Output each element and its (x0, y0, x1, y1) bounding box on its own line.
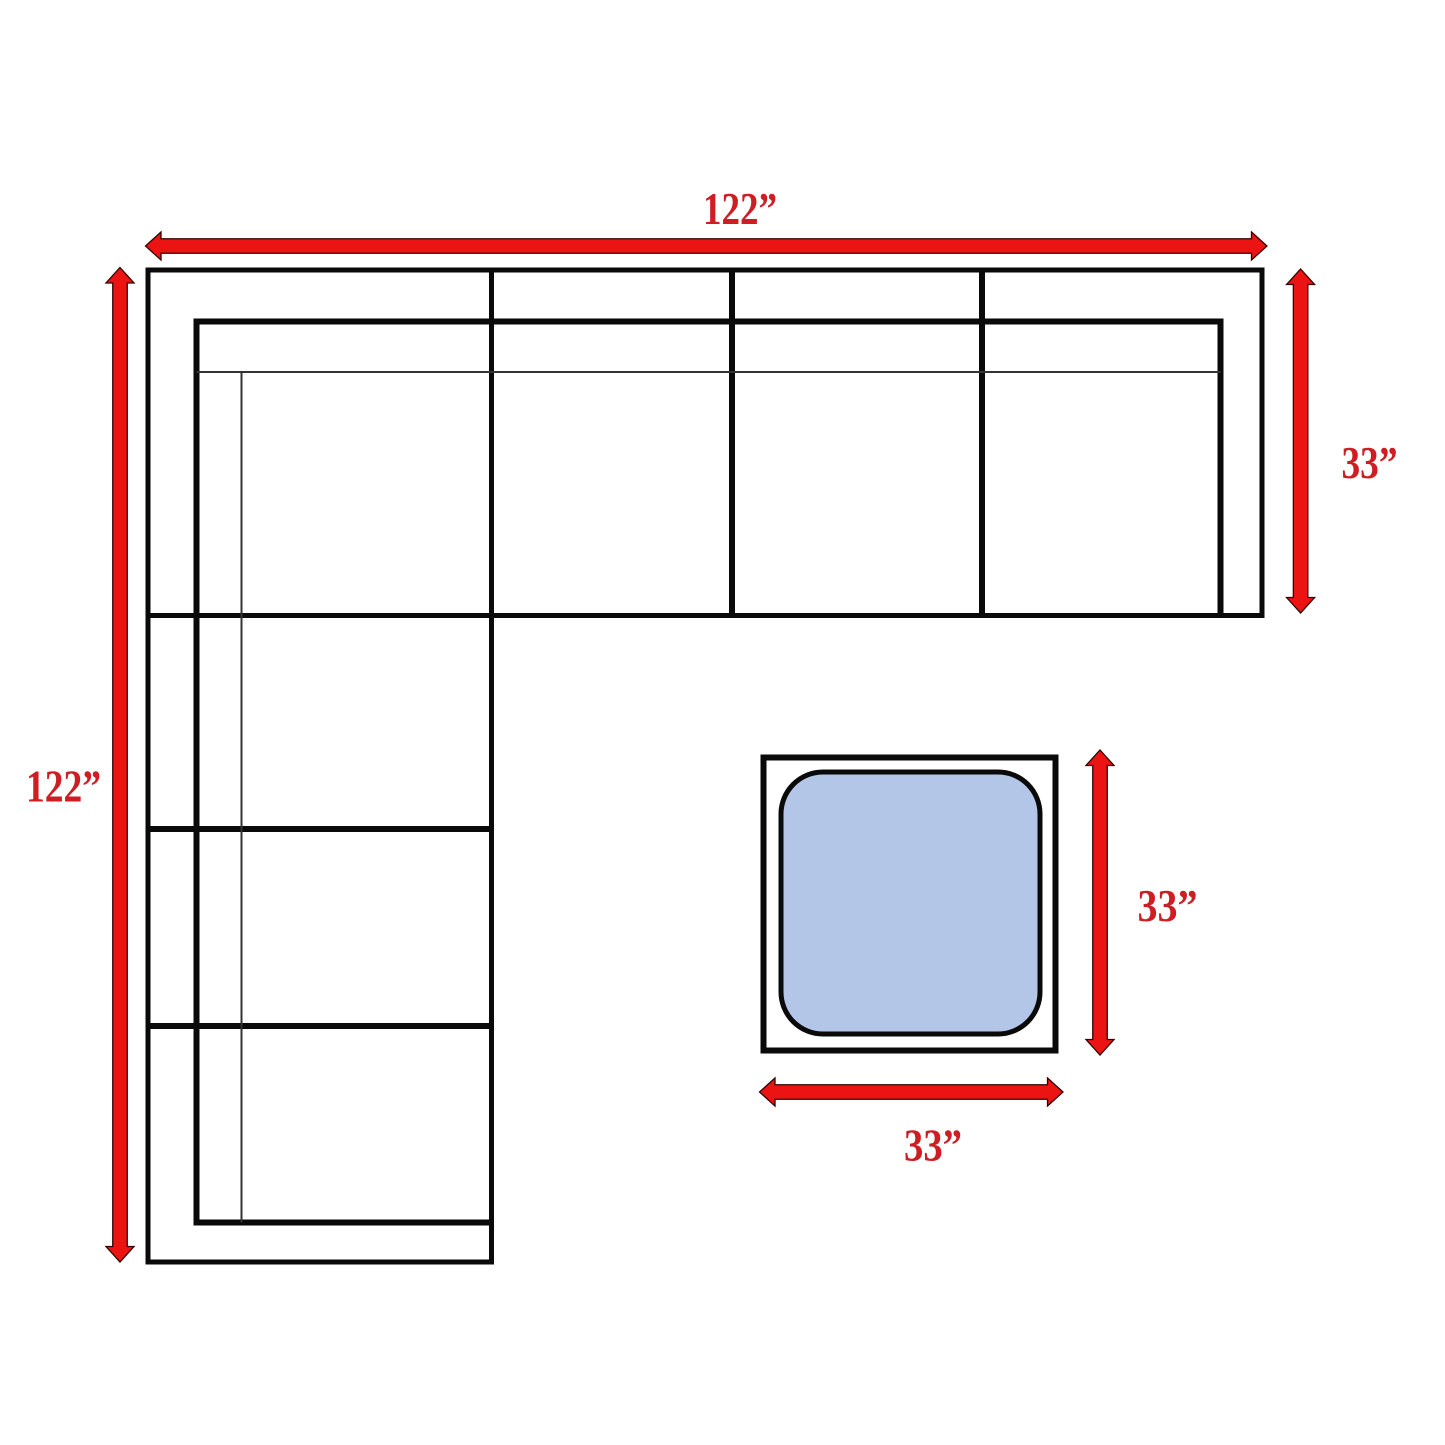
svg-text:33”: 33” (904, 1120, 962, 1171)
svg-text:33”: 33” (1342, 437, 1398, 488)
svg-text:33”: 33” (1138, 880, 1198, 931)
svg-text:122”: 122” (703, 183, 777, 234)
svg-text:122”: 122” (26, 761, 101, 812)
